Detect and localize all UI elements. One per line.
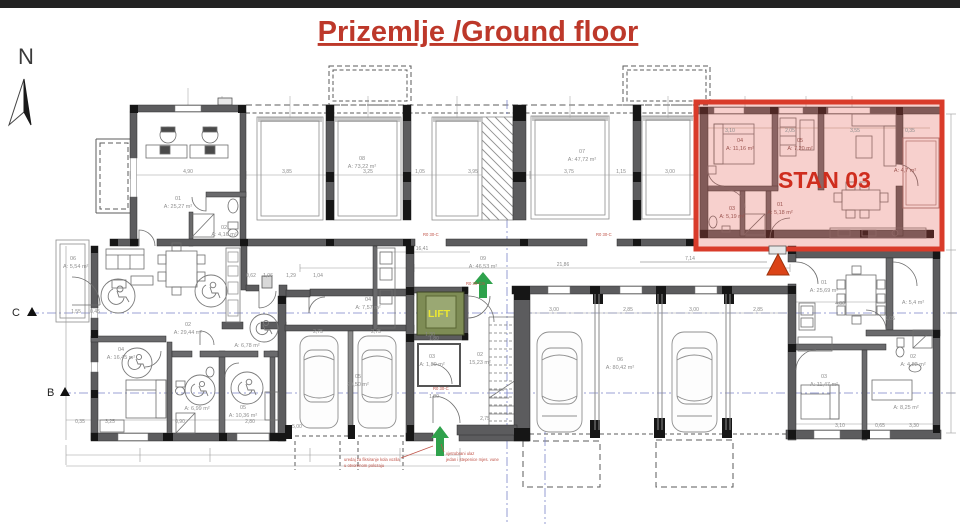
svg-text:01: 01 (777, 202, 783, 208)
svg-text:4,90: 4,90 (183, 169, 193, 175)
svg-text:21,86: 21,86 (557, 262, 570, 268)
svg-text:01: 01 (175, 196, 181, 202)
svg-text:01: 01 (821, 280, 827, 286)
svg-text:1,05: 1,05 (415, 169, 425, 175)
svg-text:B: B (47, 387, 54, 399)
svg-text:16,41: 16,41 (416, 246, 429, 252)
svg-text:R0 30-C: R0 30-C (596, 232, 612, 237)
svg-text:1,80: 1,80 (429, 394, 439, 400)
svg-text:A: 5,19 m²: A: 5,19 m² (719, 214, 745, 220)
svg-text:0,90: 0,90 (175, 419, 185, 425)
svg-text:jedan i stepenice mjes. vune: jedan i stepenice mjes. vune (445, 457, 500, 462)
svg-text:4,80: 4,80 (835, 301, 845, 307)
svg-text:A: 6,78 m²: A: 6,78 m² (234, 343, 260, 349)
svg-text:A: 6,99 m²: A: 6,99 m² (184, 406, 210, 412)
svg-text:3,25: 3,25 (363, 169, 373, 175)
svg-text:A: 4,16 m²: A: 4,16 m² (211, 232, 237, 238)
svg-text:2,75: 2,75 (313, 329, 323, 335)
svg-text:A: 5,4 m²: A: 5,4 m² (902, 300, 924, 306)
svg-text:3,00: 3,00 (665, 169, 675, 175)
svg-text:0,35: 0,35 (905, 128, 915, 134)
svg-text:3,75: 3,75 (564, 169, 574, 175)
svg-text:A: 7,20 m²: A: 7,20 m² (787, 146, 813, 152)
svg-text:2,85: 2,85 (753, 307, 763, 313)
svg-text:R0 30-C: R0 30-C (433, 386, 449, 391)
svg-text:1,15: 1,15 (616, 169, 626, 175)
svg-text:A: 1,80 m²: A: 1,80 m² (419, 362, 445, 368)
svg-text:A: 8,25 m²: A: 8,25 m² (893, 405, 919, 411)
svg-text:A: 4,82 m²: A: 4,82 m² (900, 362, 926, 368)
svg-text:uredaj za fiksiranje kola vozi: uredaj za fiksiranje kola vozila (344, 457, 400, 462)
svg-text:09: 09 (480, 256, 486, 262)
svg-text:2,05: 2,05 (785, 128, 795, 134)
svg-text:u otvorenom polozaju: u otvorenom polozaju (344, 463, 385, 468)
svg-text:A: 47,72 m²: A: 47,72 m² (568, 157, 597, 163)
svg-text:2,75: 2,75 (371, 329, 381, 335)
svg-text:02: 02 (185, 322, 191, 328)
svg-text:04: 04 (118, 347, 124, 353)
svg-text:C: C (12, 307, 20, 319)
svg-text:2,80: 2,80 (245, 419, 255, 425)
svg-text:03: 03 (729, 206, 735, 212)
svg-text:15,23 m²: 15,23 m² (469, 360, 491, 366)
svg-text:3,55: 3,55 (850, 128, 860, 134)
svg-text:A: 25,69 m²: A: 25,69 m² (810, 288, 839, 294)
svg-text:R0 30-C: R0 30-C (423, 232, 439, 237)
svg-text:STAN 03: STAN 03 (778, 167, 871, 193)
svg-text:A: 25,27 m²: A: 25,27 m² (164, 204, 193, 210)
svg-text:A: 29,44 m²: A: 29,44 m² (174, 330, 203, 336)
svg-text:05: 05 (355, 374, 361, 380)
svg-text:02: 02 (477, 352, 483, 358)
svg-text:1,06: 1,06 (263, 273, 273, 279)
svg-text:0,35: 0,35 (75, 419, 85, 425)
svg-text:7,14: 7,14 (685, 256, 695, 262)
svg-text:3,85: 3,85 (282, 169, 292, 175)
svg-text:0,62: 0,62 (246, 273, 256, 279)
svg-text:3,10: 3,10 (725, 128, 735, 134)
svg-text:3,95: 3,95 (468, 169, 478, 175)
svg-text:vjetrobrani ulaz: vjetrobrani ulaz (446, 451, 474, 456)
svg-text:2,75: 2,75 (480, 416, 490, 422)
svg-text:3,10: 3,10 (835, 423, 845, 429)
svg-text:1,04: 1,04 (313, 273, 323, 279)
svg-text:A: 80,42 m²: A: 80,42 m² (606, 365, 635, 371)
svg-text:2,85: 2,85 (623, 307, 633, 313)
svg-text:04: 04 (365, 297, 371, 303)
svg-text:0,45: 0,45 (90, 309, 100, 315)
svg-text:03: 03 (821, 374, 827, 380)
svg-text:A: 46,53 m²: A: 46,53 m² (469, 264, 498, 270)
svg-text:Prizemlje /Ground floor: Prizemlje /Ground floor (318, 16, 639, 48)
svg-text:3,00: 3,00 (689, 307, 699, 313)
svg-text:3,25: 3,25 (105, 419, 115, 425)
svg-text:A: 5,18 m²: A: 5,18 m² (767, 210, 793, 216)
svg-text:3,00: 3,00 (549, 307, 559, 313)
svg-text:04: 04 (737, 138, 743, 144)
svg-text:03: 03 (429, 354, 435, 360)
svg-text:A: 11,47 m²: A: 11,47 m² (810, 382, 838, 388)
svg-text:A: 4,7 m²: A: 4,7 m² (894, 168, 916, 174)
svg-text:A: 5,54 m²: A: 5,54 m² (63, 264, 89, 270)
svg-text:29,50 m²: 29,50 m² (347, 382, 369, 388)
svg-text:05: 05 (240, 405, 246, 411)
svg-text:02: 02 (221, 225, 227, 231)
svg-text:1,30: 1,30 (425, 332, 435, 338)
svg-text:5,00: 5,00 (292, 424, 302, 430)
svg-text:LIFT: LIFT (428, 308, 451, 320)
svg-text:06: 06 (70, 256, 76, 262)
svg-text:A: 16,45 m²: A: 16,45 m² (107, 355, 136, 361)
svg-text:R0 30-Cm: R0 30-Cm (466, 281, 486, 286)
svg-text:0,65: 0,65 (875, 423, 885, 429)
svg-text:1,05: 1,05 (885, 316, 895, 322)
svg-text:1,29: 1,29 (286, 273, 296, 279)
svg-text:08: 08 (359, 156, 365, 162)
svg-text:02: 02 (910, 354, 916, 360)
svg-text:06: 06 (617, 357, 623, 363)
svg-text:A: 11,16 m²: A: 11,16 m² (726, 146, 754, 152)
svg-text:05: 05 (797, 138, 803, 144)
svg-text:1,55: 1,55 (71, 309, 81, 315)
svg-text:07: 07 (579, 149, 585, 155)
svg-text:N: N (18, 44, 34, 69)
svg-text:A: 7,57 m²: A: 7,57 m² (355, 305, 381, 311)
svg-text:3,30: 3,30 (909, 423, 919, 429)
